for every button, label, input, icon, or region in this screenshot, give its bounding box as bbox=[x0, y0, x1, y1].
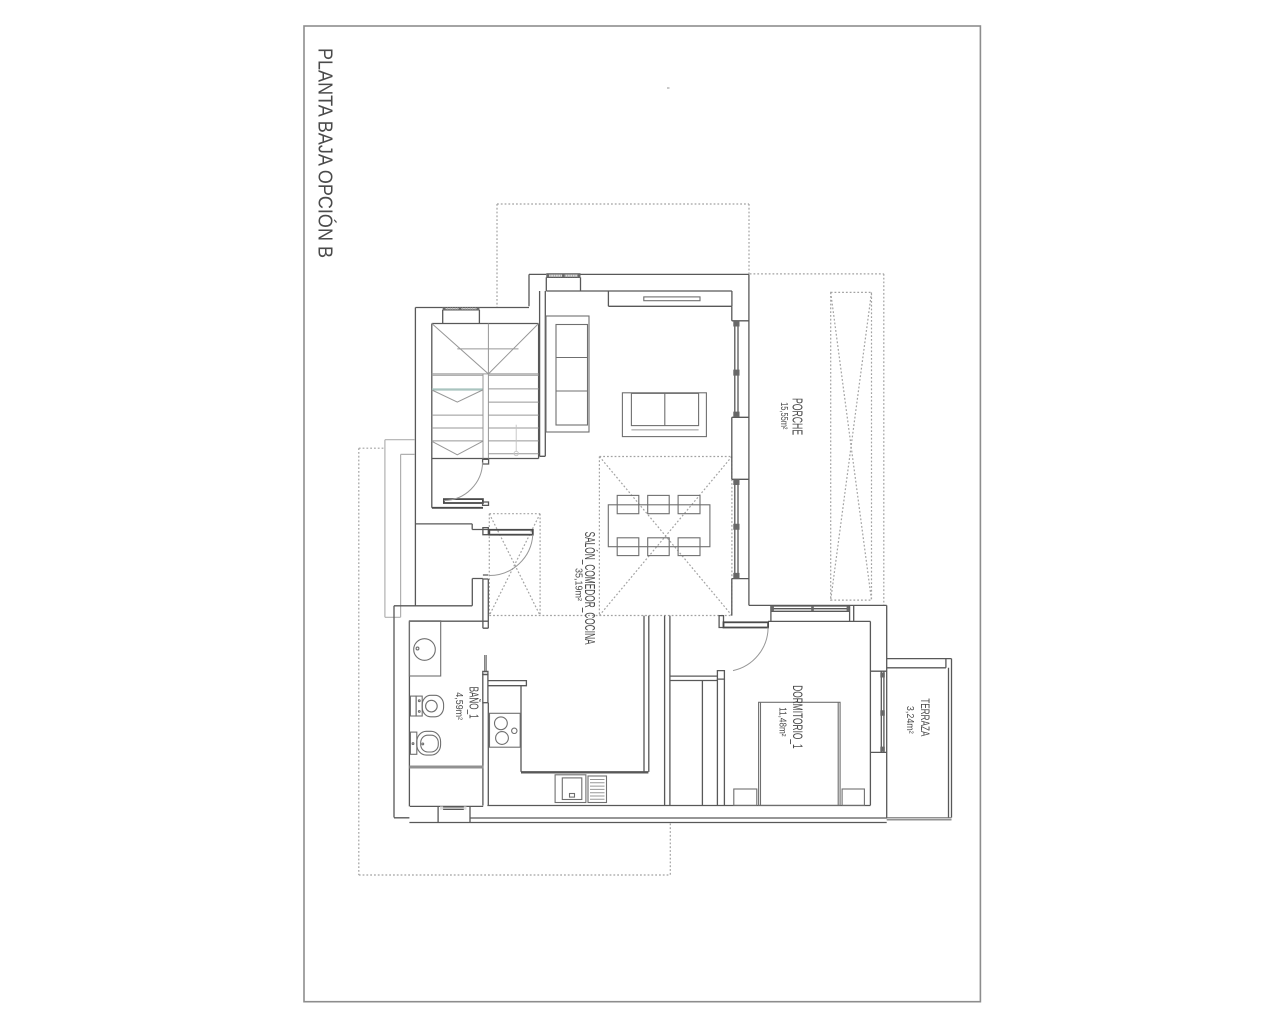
svg-text:4,59m²: 4,59m² bbox=[453, 692, 464, 721]
svg-text:BAÑO_1: BAÑO_1 bbox=[467, 687, 481, 719]
svg-text:PORCHE: PORCHE bbox=[789, 398, 805, 435]
svg-text:15,55m²: 15,55m² bbox=[778, 402, 789, 430]
svg-text:11,48m²: 11,48m² bbox=[776, 707, 787, 737]
svg-text:DORMITORIO_1: DORMITORIO_1 bbox=[790, 685, 806, 749]
svg-text:35,19m²: 35,19m² bbox=[572, 568, 583, 602]
svg-text:3,24m²: 3,24m² bbox=[904, 706, 915, 735]
svg-text:PLANTA BAJA OPCIÓN B: PLANTA BAJA OPCIÓN B bbox=[314, 48, 337, 258]
svg-text:TERRAZA: TERRAZA bbox=[918, 698, 931, 736]
